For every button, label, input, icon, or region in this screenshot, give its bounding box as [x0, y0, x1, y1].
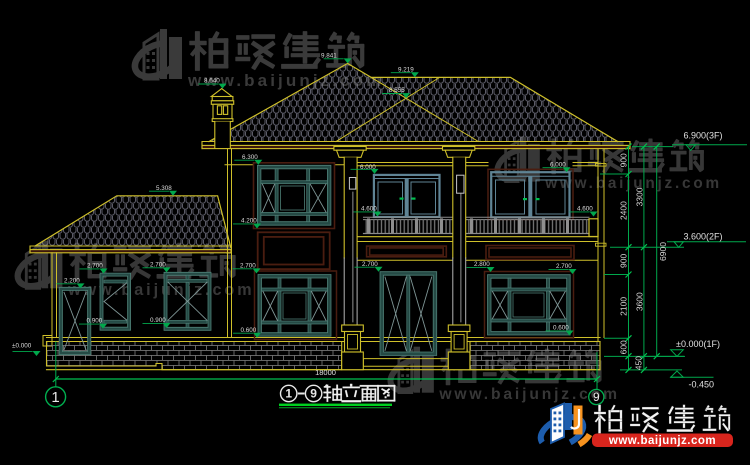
- svg-text:±0.000: ±0.000: [12, 343, 32, 350]
- svg-text:0.900: 0.900: [87, 318, 103, 325]
- svg-text:2400: 2400: [619, 201, 629, 220]
- svg-text:4.200: 4.200: [241, 218, 257, 225]
- svg-text:-0.450: -0.450: [689, 380, 715, 390]
- svg-text:2.700: 2.700: [87, 263, 103, 270]
- svg-text:6.000: 6.000: [360, 164, 376, 171]
- svg-text:3600: 3600: [635, 292, 645, 311]
- svg-text:6.000: 6.000: [550, 161, 566, 168]
- svg-text:9.841: 9.841: [321, 52, 337, 59]
- svg-text:9: 9: [310, 387, 317, 401]
- svg-text:1: 1: [285, 387, 292, 401]
- svg-text:9.219: 9.219: [398, 66, 414, 73]
- svg-text:0.600: 0.600: [553, 325, 569, 332]
- svg-text:www.baijunjz.com: www.baijunjz.com: [608, 435, 716, 447]
- svg-text:18000: 18000: [315, 368, 336, 377]
- svg-text:5.308: 5.308: [156, 185, 172, 192]
- svg-text:3300: 3300: [635, 187, 645, 206]
- svg-text:2.700: 2.700: [240, 262, 256, 269]
- svg-text:9: 9: [593, 390, 600, 404]
- svg-text:6.900(3F): 6.900(3F): [684, 131, 723, 141]
- svg-text:3.600(2F): 3.600(2F): [684, 232, 723, 242]
- svg-text:0.900: 0.900: [150, 317, 166, 324]
- svg-text:2.700: 2.700: [150, 261, 166, 268]
- svg-text:450: 450: [634, 356, 644, 370]
- svg-text:8.640: 8.640: [204, 78, 220, 85]
- svg-text:1: 1: [51, 389, 59, 406]
- svg-text:900: 900: [619, 254, 629, 268]
- svg-text:2.800: 2.800: [474, 261, 490, 268]
- svg-text:600: 600: [619, 340, 629, 354]
- svg-text:6900: 6900: [658, 242, 668, 261]
- svg-text:6.300: 6.300: [242, 154, 258, 161]
- svg-text:4.600: 4.600: [361, 206, 377, 213]
- svg-text:2.700: 2.700: [556, 263, 572, 270]
- svg-text:4.600: 4.600: [577, 206, 593, 213]
- svg-text:8.555: 8.555: [389, 87, 405, 94]
- svg-text:2100: 2100: [619, 297, 629, 316]
- svg-text:900: 900: [619, 153, 629, 167]
- svg-text:±0.000(1F): ±0.000(1F): [676, 339, 720, 349]
- svg-text:2.200: 2.200: [64, 277, 80, 284]
- svg-text:0.600: 0.600: [241, 327, 257, 334]
- svg-text:2.700: 2.700: [362, 261, 378, 268]
